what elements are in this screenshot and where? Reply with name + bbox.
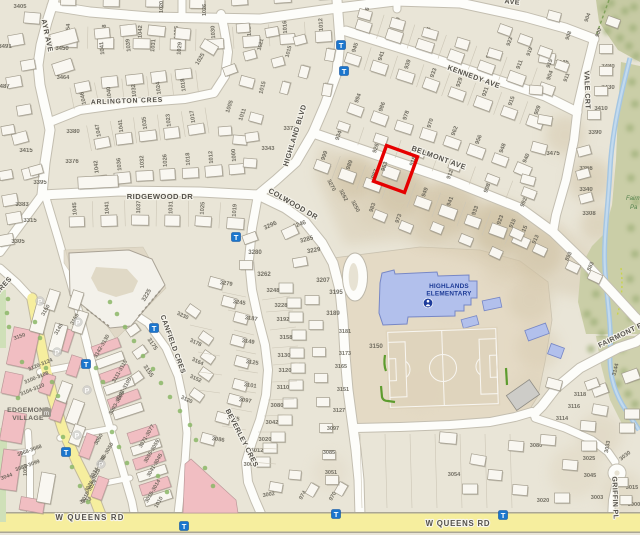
svg-text:3450: 3450: [55, 46, 69, 52]
svg-text:1030: 1030: [210, 25, 217, 38]
svg-text:T: T: [152, 324, 157, 333]
svg-text:1037: 1037: [136, 201, 142, 214]
svg-text:3343: 3343: [262, 146, 276, 152]
svg-text:3262: 3262: [257, 271, 271, 278]
svg-text:3376: 3376: [65, 159, 79, 165]
svg-text:1041: 1041: [104, 200, 110, 214]
svg-text:3116: 3116: [568, 404, 580, 410]
svg-text:3189: 3189: [326, 310, 340, 317]
svg-text:3020: 3020: [259, 437, 272, 443]
svg-text:3405: 3405: [14, 4, 28, 10]
svg-text:1018: 1018: [185, 152, 192, 166]
svg-text:3020: 3020: [537, 498, 549, 504]
svg-text:3464: 3464: [57, 75, 70, 81]
svg-text:1026: 1026: [162, 153, 169, 167]
svg-text:3181: 3181: [339, 329, 351, 335]
svg-text:3118: 3118: [574, 392, 586, 398]
svg-text:Pa: Pa: [630, 205, 638, 211]
svg-text:P: P: [85, 388, 90, 395]
svg-text:1026: 1026: [202, 4, 208, 16]
svg-text:3080: 3080: [271, 403, 284, 409]
svg-text:W QUEENS RD: W QUEENS RD: [55, 513, 124, 522]
svg-text:1031: 1031: [168, 200, 174, 214]
svg-text:3207: 3207: [316, 277, 330, 284]
svg-text:W QUEENS RD: W QUEENS RD: [426, 519, 491, 528]
svg-text:3045: 3045: [584, 473, 596, 479]
svg-text:3390: 3390: [588, 130, 602, 136]
svg-text:T: T: [339, 41, 344, 50]
svg-text:1032: 1032: [139, 155, 146, 168]
svg-text:1050: 1050: [23, 464, 29, 476]
svg-text:T: T: [342, 67, 347, 76]
svg-text:1000: 1000: [231, 148, 238, 161]
svg-text:3173: 3173: [339, 351, 351, 357]
svg-text:3315: 3315: [23, 218, 37, 224]
svg-text:1019: 1019: [232, 203, 239, 217]
svg-text:3158: 3158: [280, 335, 294, 341]
svg-text:P: P: [38, 299, 43, 306]
svg-text:3085: 3085: [323, 450, 335, 456]
svg-text:3051: 3051: [325, 470, 337, 476]
svg-text:3151: 3151: [337, 387, 349, 393]
svg-text:3127: 3127: [333, 408, 345, 414]
svg-text:T: T: [334, 510, 339, 519]
svg-text:T: T: [234, 233, 239, 242]
svg-text:Fairm: Fairm: [626, 196, 640, 202]
svg-text:1016: 1016: [282, 20, 289, 34]
svg-text:3130: 3130: [278, 353, 291, 359]
svg-text:T: T: [182, 522, 187, 531]
svg-text:1045: 1045: [72, 201, 78, 215]
svg-text:HIGHLANDS: HIGHLANDS: [429, 283, 469, 290]
svg-text:T: T: [64, 448, 69, 457]
svg-text:3025: 3025: [583, 456, 595, 462]
svg-text:3395: 3395: [33, 180, 47, 186]
svg-text:1020: 1020: [159, 1, 165, 13]
svg-text:T: T: [501, 511, 506, 520]
svg-text:3475: 3475: [546, 151, 560, 157]
svg-text:RIDGEWOOD DR: RIDGEWOOD DR: [127, 192, 194, 201]
svg-text:1025: 1025: [200, 201, 207, 215]
svg-text:1012: 1012: [208, 150, 215, 163]
svg-text:P: P: [76, 320, 81, 327]
svg-text:3195: 3195: [329, 289, 343, 296]
svg-text:3380: 3380: [66, 129, 80, 135]
svg-text:ELEMENTARY: ELEMENTARY: [426, 291, 472, 298]
svg-text:3228: 3228: [275, 303, 289, 309]
svg-text:3192: 3192: [277, 317, 290, 323]
svg-text:3415: 3415: [19, 148, 33, 154]
svg-text:m: m: [44, 411, 49, 417]
svg-text:3114: 3114: [556, 416, 569, 422]
svg-text:3383: 3383: [15, 202, 29, 208]
svg-text:3150: 3150: [369, 343, 383, 350]
svg-text:VILLAGE: VILLAGE: [12, 415, 44, 422]
svg-text:3110: 3110: [277, 385, 290, 391]
svg-text:3491: 3491: [0, 44, 12, 50]
svg-text:3003: 3003: [591, 495, 603, 501]
svg-text:P: P: [75, 433, 80, 440]
svg-text:3120: 3120: [279, 368, 292, 374]
svg-text:1042: 1042: [138, 25, 144, 38]
svg-text:3308: 3308: [582, 211, 596, 217]
svg-text:VALE CRT: VALE CRT: [582, 70, 592, 109]
svg-text:1012: 1012: [318, 18, 325, 31]
svg-text:3487: 3487: [0, 84, 10, 90]
svg-text:3097: 3097: [327, 426, 339, 432]
svg-text:3280: 3280: [248, 249, 262, 256]
svg-text:3248: 3248: [267, 288, 281, 294]
svg-text:P: P: [55, 350, 60, 357]
svg-text:T: T: [84, 360, 89, 369]
svg-text:3054: 3054: [448, 472, 461, 478]
svg-text:3305: 3305: [11, 239, 25, 245]
svg-text:3165: 3165: [335, 364, 347, 370]
svg-text:P: P: [99, 462, 104, 469]
svg-text:3042: 3042: [266, 420, 279, 426]
